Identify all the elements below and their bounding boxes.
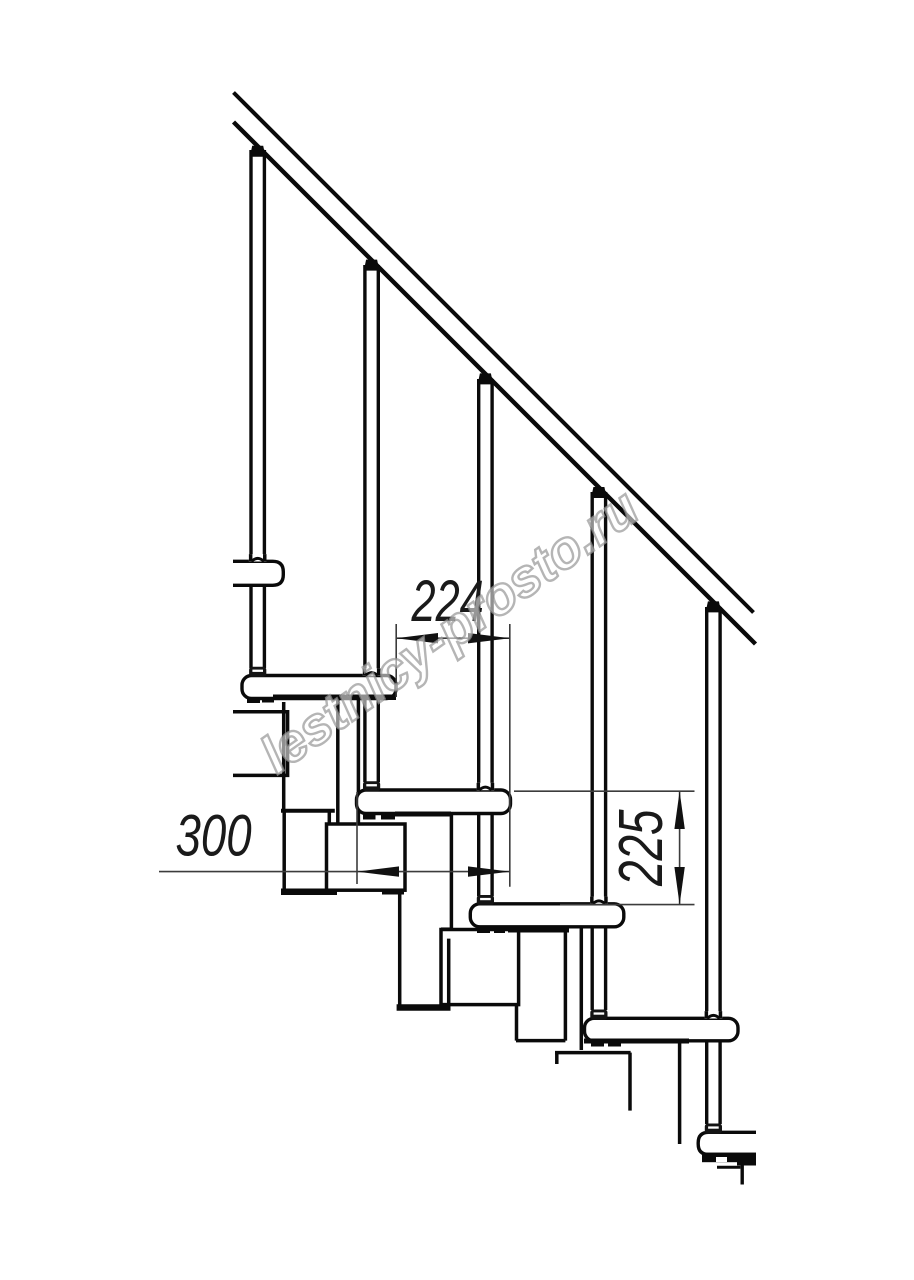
svg-text:225: 225	[606, 809, 675, 887]
svg-text:300: 300	[176, 804, 252, 869]
